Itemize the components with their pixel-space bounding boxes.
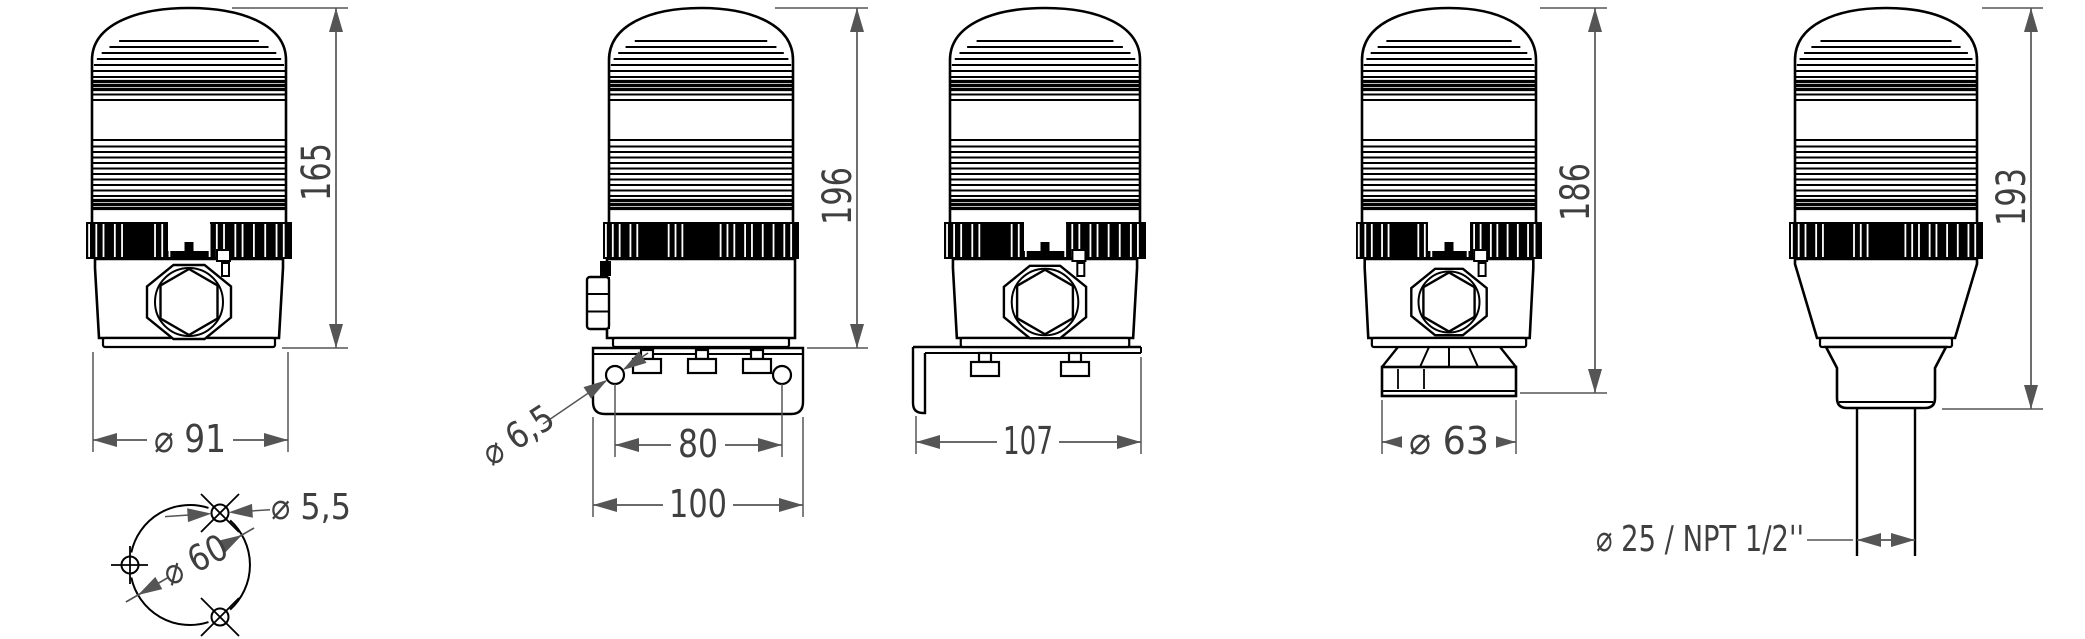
dim-height-193: 193 bbox=[1989, 168, 2035, 226]
dim-height-186: 186 bbox=[1553, 163, 1599, 221]
dim-hole-diameter-5-5: ⌀ 5,5 bbox=[271, 487, 351, 528]
dim-height-196: 196 bbox=[815, 167, 861, 225]
dim-height-165: 165 bbox=[294, 143, 340, 201]
dim-tube-spec-npt: ⌀ 25 / NPT 1/2'' bbox=[1596, 519, 1804, 560]
beacon-dimension-drawing: 165 ⌀ 91 ⌀ 5,5 ⌀ 60 196 ⌀ 6,5 80 100 107… bbox=[0, 0, 2085, 639]
dim-base-diameter-91: ⌀ 91 bbox=[154, 417, 226, 461]
dim-hole-spacing-80: 80 bbox=[678, 422, 718, 466]
dim-adapter-diameter-63: ⌀ 63 bbox=[1409, 419, 1489, 463]
technical-drawing-page: 165 ⌀ 91 ⌀ 5,5 ⌀ 60 196 ⌀ 6,5 80 100 107… bbox=[0, 0, 2085, 639]
dim-bracket-width-100: 100 bbox=[669, 482, 727, 526]
dim-depth-107: 107 bbox=[1003, 419, 1053, 463]
